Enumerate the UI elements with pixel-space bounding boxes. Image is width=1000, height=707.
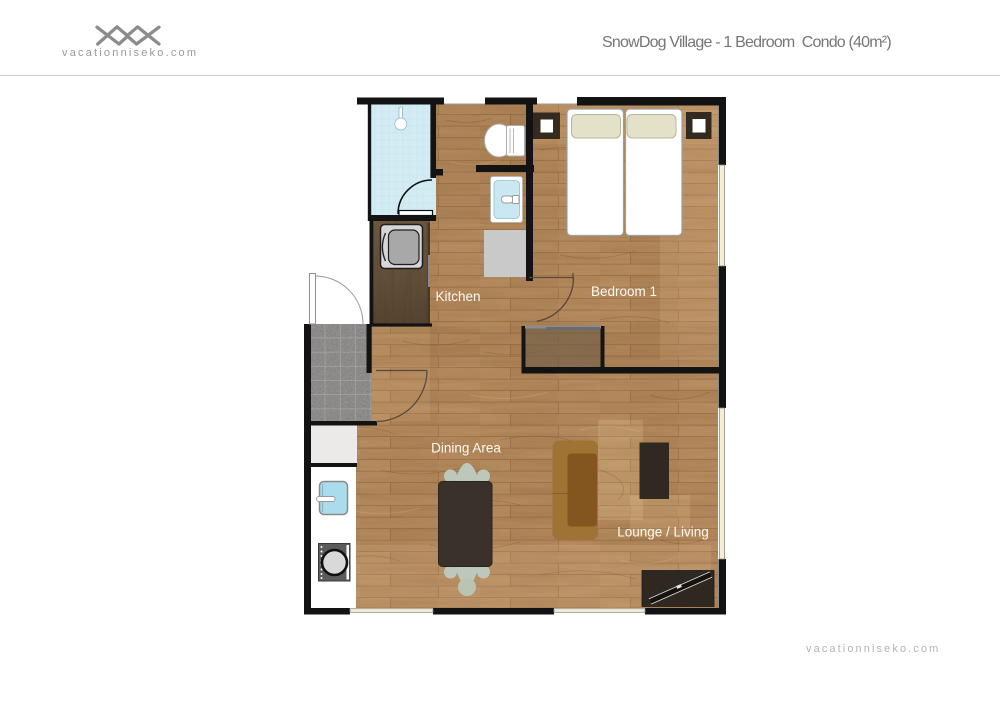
svg-text:Bedroom 1: Bedroom 1 bbox=[591, 284, 657, 299]
svg-text:Kitchen: Kitchen bbox=[435, 289, 480, 304]
svg-text:Dining Area: Dining Area bbox=[431, 441, 501, 456]
svg-text:Lounge / Living: Lounge / Living bbox=[617, 525, 709, 540]
